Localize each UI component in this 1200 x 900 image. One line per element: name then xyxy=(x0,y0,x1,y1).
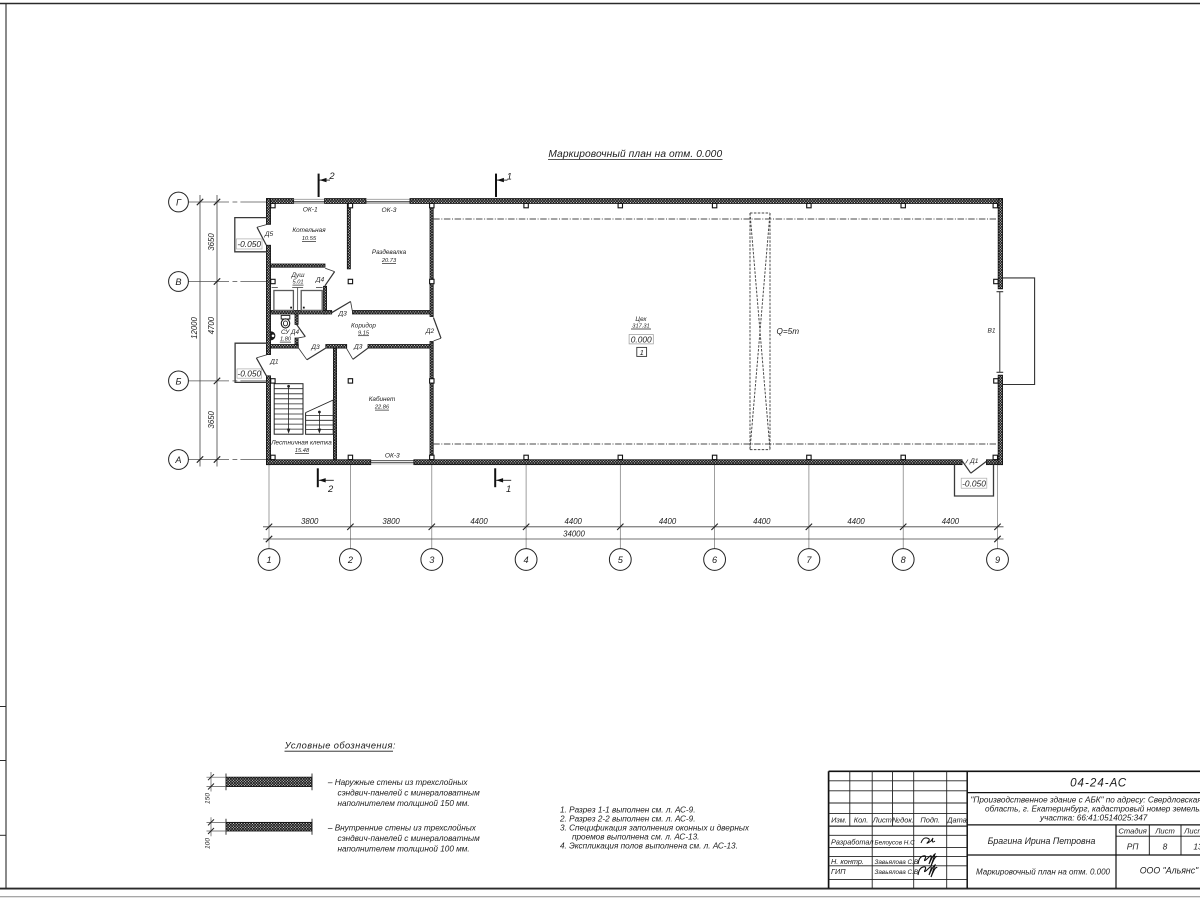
svg-text:1: 1 xyxy=(506,483,511,494)
svg-text:3. Спецификация заполнения око: 3. Спецификация заполнения оконных и две… xyxy=(560,824,750,833)
svg-text:4700: 4700 xyxy=(207,316,216,334)
svg-text:2: 2 xyxy=(328,170,335,181)
svg-text:область, г. Екатеринбург, када: область, г. Екатеринбург, кадастровый но… xyxy=(985,804,1200,813)
svg-text:1: 1 xyxy=(266,555,271,565)
svg-text:4. Экспликация полов выполнена: 4. Экспликация полов выполнена см. л. АС… xyxy=(560,842,738,851)
svg-text:8: 8 xyxy=(901,555,907,565)
svg-text:-0.050: -0.050 xyxy=(237,369,261,379)
svg-text:РП: РП xyxy=(1127,841,1140,851)
svg-text:4400: 4400 xyxy=(753,517,771,526)
svg-text:13: 13 xyxy=(1193,841,1200,851)
svg-text:СУ Д4: СУ Д4 xyxy=(281,329,300,336)
svg-text:Цех: Цех xyxy=(635,316,647,323)
svg-text:8: 8 xyxy=(1163,841,1168,851)
svg-text:Раздевалка: Раздевалка xyxy=(372,248,407,256)
svg-text:Белоусов Н.С: Белоусов Н.С xyxy=(875,840,916,847)
svg-text:04-24-АС: 04-24-АС xyxy=(1070,776,1127,789)
svg-text:Разработал: Разработал xyxy=(831,838,874,847)
svg-text:ОК-1: ОК-1 xyxy=(303,207,318,214)
svg-text:Лист: Лист xyxy=(1154,827,1175,836)
svg-text:Котельная: Котельная xyxy=(292,227,326,234)
svg-text:-0.050: -0.050 xyxy=(237,239,261,249)
svg-text:150: 150 xyxy=(205,793,212,804)
svg-text:А: А xyxy=(174,455,181,465)
svg-text:4: 4 xyxy=(524,555,529,565)
svg-text:4400: 4400 xyxy=(659,517,677,526)
svg-text:-0.050: -0.050 xyxy=(962,479,986,489)
svg-text:"Производственное здание с АБК: "Производственное здание с АБК" по адрес… xyxy=(971,795,1200,804)
svg-text:Д1: Д1 xyxy=(269,359,279,366)
svg-text:наполнителем толщиной 100 мм.: наполнителем толщиной 100 мм. xyxy=(338,844,470,853)
svg-text:Коридор: Коридор xyxy=(351,321,376,329)
svg-text:2: 2 xyxy=(347,555,353,565)
svg-text:наполнителем толщиной 150 мм.: наполнителем толщиной 150 мм. xyxy=(338,799,470,808)
svg-text:сэндвич-панелей с минераловатн: сэндвич-панелей с минераловатным xyxy=(338,789,481,798)
svg-text:– Наружные стены из трехслойн: – Наружные стены из трехслойных xyxy=(327,778,468,787)
svg-text:Д4: Д4 xyxy=(315,276,325,283)
svg-text:Д2: Д2 xyxy=(425,328,435,335)
svg-text:Д3: Д3 xyxy=(338,310,348,317)
svg-text:Кабинет: Кабинет xyxy=(369,395,396,403)
svg-text:Д3: Д3 xyxy=(310,344,320,351)
svg-text:ГИП: ГИП xyxy=(831,867,846,876)
svg-text:Брагина Ирина Петровна: Брагина Ирина Петровна xyxy=(988,836,1096,846)
svg-text:4400: 4400 xyxy=(847,517,865,526)
svg-text:6: 6 xyxy=(712,555,718,565)
svg-text:12000: 12000 xyxy=(190,316,199,338)
svg-text:№док.: №док. xyxy=(892,816,914,825)
svg-text:В1: В1 xyxy=(987,327,995,334)
svg-text:ООО "Альянс": ООО "Альянс" xyxy=(1140,865,1199,875)
svg-text:2: 2 xyxy=(327,483,334,494)
svg-text:3: 3 xyxy=(429,555,435,565)
svg-text:0.000: 0.000 xyxy=(631,334,652,344)
svg-text:Маркировочный план на отм. 0.0: Маркировочный план на отм. 0.000 xyxy=(976,867,1111,876)
svg-text:Завьялова С.В: Завьялова С.В xyxy=(875,859,919,866)
svg-text:1. Разрез 1-1 выполнен см. л.: 1. Разрез 1-1 выполнен см. л. АС-9. xyxy=(560,806,695,815)
svg-text:Завьялова С.В: Завьялова С.В xyxy=(875,869,919,876)
svg-text:4400: 4400 xyxy=(942,517,960,526)
svg-text:Условные обозначения:: Условные обозначения: xyxy=(284,741,396,751)
svg-text:Дата: Дата xyxy=(946,816,967,825)
svg-text:Кол.: Кол. xyxy=(854,816,869,825)
svg-text:4400: 4400 xyxy=(565,517,583,526)
svg-text:проемов выполнена см. л. АС-13: проемов выполнена см. л. АС-13. xyxy=(572,833,699,842)
svg-text:Б: Б xyxy=(176,376,182,386)
svg-text:5: 5 xyxy=(618,555,624,565)
svg-text:2. Разрез 2-2 выполнен см. л.: 2. Разрез 2-2 выполнен см. л. АС-9. xyxy=(559,815,695,824)
svg-text:участка: 66:41:0514025:347: участка: 66:41:0514025:347 xyxy=(1039,813,1148,822)
svg-text:3800: 3800 xyxy=(382,517,400,526)
svg-text:Подп.: Подп. xyxy=(920,816,940,825)
svg-text:Д5: Д5 xyxy=(264,231,274,238)
svg-text:Q=5т: Q=5т xyxy=(777,327,800,336)
svg-text:3800: 3800 xyxy=(301,517,319,526)
svg-text:В: В xyxy=(175,277,181,287)
svg-text:ОК-3: ОК-3 xyxy=(385,453,400,460)
svg-text:Н. контр.: Н. контр. xyxy=(831,857,864,866)
svg-text:Душ: Душ xyxy=(291,272,306,279)
svg-text:Д3: Д3 xyxy=(353,344,363,351)
svg-text:9: 9 xyxy=(995,555,1000,565)
svg-text:Листов: Листов xyxy=(1183,827,1200,836)
svg-text:Лестничная клетка: Лестничная клетка xyxy=(270,440,332,447)
svg-text:Маркировочный план на отм. 0.0: Маркировочный план на отм. 0.000 xyxy=(548,149,722,160)
svg-text:7: 7 xyxy=(806,555,812,565)
svg-text:3650: 3650 xyxy=(207,233,216,251)
svg-text:1: 1 xyxy=(640,348,644,357)
svg-text:100: 100 xyxy=(205,838,212,849)
svg-text:34000: 34000 xyxy=(563,530,585,539)
svg-text:1: 1 xyxy=(507,171,512,182)
svg-text:Д1: Д1 xyxy=(969,458,979,465)
svg-text:Лист: Лист xyxy=(872,816,892,825)
svg-text:4400: 4400 xyxy=(470,517,488,526)
svg-text:ОК-3: ОК-3 xyxy=(382,207,397,214)
svg-text:Стадия: Стадия xyxy=(1118,827,1146,836)
svg-text:сэндвич-панелей с минераловатн: сэндвич-панелей с минераловатным xyxy=(338,834,481,843)
svg-text:– Внутренние стены из трехсло: – Внутренние стены из трехслойных xyxy=(327,823,477,832)
svg-text:3650: 3650 xyxy=(207,410,216,428)
svg-text:Изм.: Изм. xyxy=(831,816,847,825)
